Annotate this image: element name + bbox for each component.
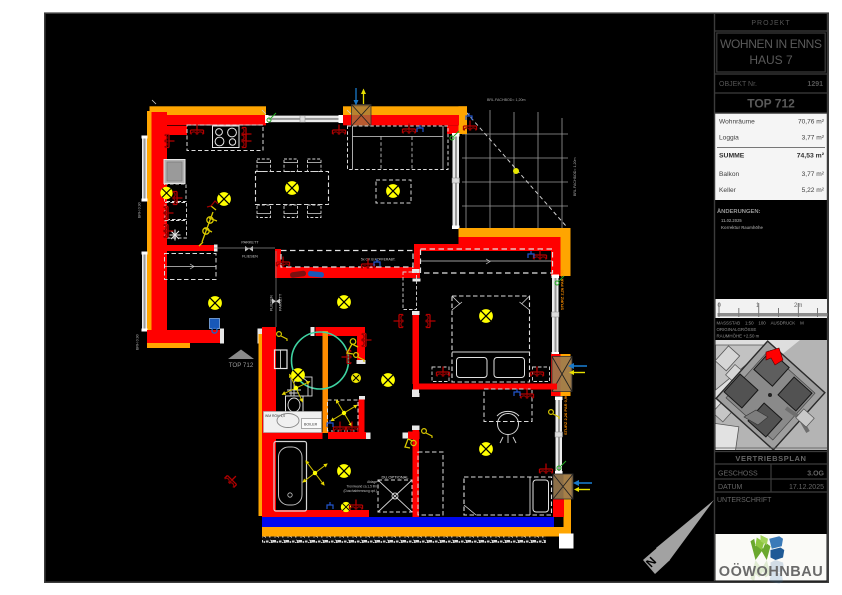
svg-text:1291: 1291 <box>807 81 823 88</box>
svg-text:5,22 m²: 5,22 m² <box>802 187 825 194</box>
svg-text:Keller: Keller <box>719 187 737 194</box>
svg-text:VERTRIEBSPLAN: VERTRIEBSPLAN <box>735 454 806 463</box>
svg-text:Trennwand ca.1,5 lfm: Trennwand ca.1,5 lfm <box>346 485 377 489</box>
svg-text:STURZ 2,26 PAR 0,90: STURZ 2,26 PAR 0,90 <box>560 269 565 310</box>
svg-text:11.02.2025: 11.02.2025 <box>721 218 742 223</box>
svg-text:BRH 0,90: BRH 0,90 <box>138 202 142 218</box>
svg-text:ÄNDERUNGEN:: ÄNDERUNGEN: <box>717 208 761 215</box>
svg-text:WM RÖH 1,0: WM RÖH 1,0 <box>265 414 285 418</box>
svg-text:BOILER: BOILER <box>304 423 318 427</box>
svg-text:DATUM: DATUM <box>718 484 743 491</box>
svg-text:SUMME: SUMME <box>719 153 745 160</box>
svg-text:BRL.FACHBOD= 1,20m: BRL.FACHBOD= 1,20m <box>573 158 577 196</box>
svg-text:FLIESEN: FLIESEN <box>242 255 258 259</box>
svg-text:OÖWOHNBAU: OÖWOHNBAU <box>719 563 823 580</box>
svg-text:Ablage: Ablage <box>367 480 377 484</box>
svg-text:(Duschabtrennung opt.): (Duschabtrennung opt.) <box>344 489 378 493</box>
svg-text:74,53 m²: 74,53 m² <box>797 153 825 160</box>
svg-text:Wohnräume: Wohnräume <box>719 119 755 126</box>
svg-text:DU.OPTIONAL: DU.OPTIONAL <box>381 475 409 480</box>
svg-text:WOHNEN IN ENNS: WOHNEN IN ENNS <box>720 37 822 51</box>
svg-text:PARKETT: PARKETT <box>241 241 259 245</box>
svg-text:17.12.2025: 17.12.2025 <box>789 484 824 491</box>
svg-text:PROJEKT: PROJEKT <box>751 20 790 27</box>
svg-text:HAUS 7: HAUS 7 <box>749 53 793 67</box>
svg-text:BRL.FACHBOD= 1,20m: BRL.FACHBOD= 1,20m <box>487 98 525 102</box>
svg-text:Korrektur Raumhöhe: Korrektur Raumhöhe <box>721 225 764 230</box>
svg-text:70,76 m²: 70,76 m² <box>798 119 825 126</box>
svg-text:ORIGINALGRÖSSE: ORIGINALGRÖSSE <box>717 327 757 332</box>
svg-text:OBJEKT Nr.: OBJEKT Nr. <box>719 81 757 88</box>
svg-text:BRH 0,90: BRH 0,90 <box>136 334 140 350</box>
svg-text:TOP 712: TOP 712 <box>229 362 254 369</box>
svg-text:MASSSTAB 1:50 100 AUS: MASSSTAB 1:50 100 AUSDRUCK M <box>717 321 805 326</box>
svg-text:3,77 m²: 3,77 m² <box>802 135 825 142</box>
svg-text:Balkon: Balkon <box>719 171 739 178</box>
svg-text:Loggia: Loggia <box>719 135 739 142</box>
svg-text:3,77 m²: 3,77 m² <box>802 171 825 178</box>
svg-text:RAUMHÖHE +2,50 m: RAUMHÖHE +2,50 m <box>717 334 760 339</box>
svg-text:GESCHOSS: GESCHOSS <box>718 471 758 478</box>
svg-text:STURZ 2,26 PAR 0,90: STURZ 2,26 PAR 0,90 <box>563 394 568 435</box>
svg-text:UNTERSCHRIFT: UNTERSCHRIFT <box>717 497 772 504</box>
svg-text:3.OG: 3.OG <box>807 471 824 478</box>
svg-text:TOP 712: TOP 712 <box>747 97 795 111</box>
svg-text:5x GK B.KOFFERABT.: 5x GK B.KOFFERABT. <box>361 258 396 262</box>
